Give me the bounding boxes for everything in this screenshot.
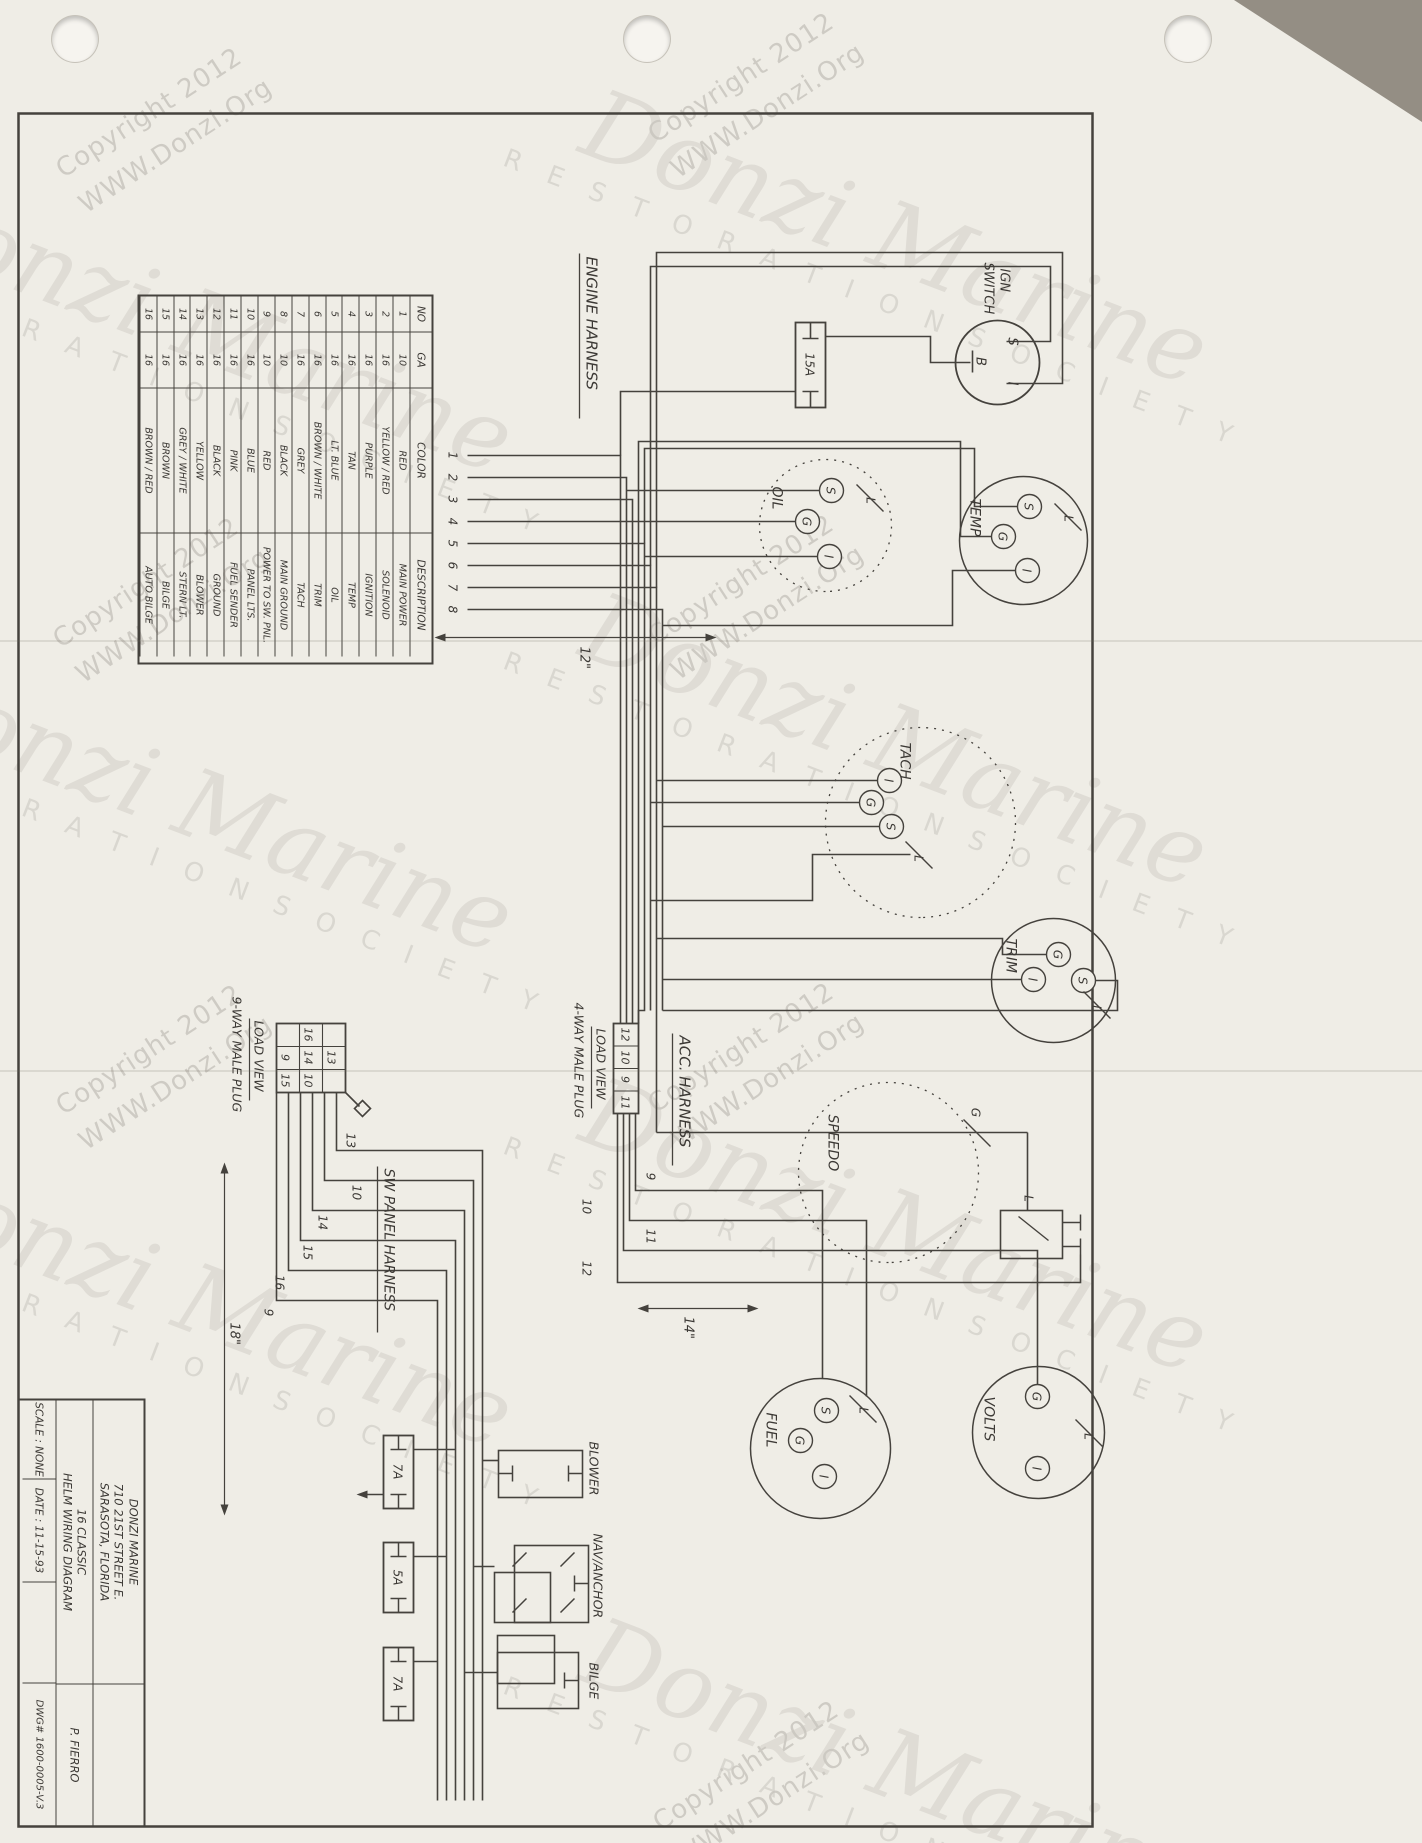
lamp-connector-box: L [1000,1195,1080,1258]
svg-text:15: 15 [300,1244,314,1259]
svg-text:10: 10 [579,1198,593,1214]
volts-terminal-i: I [1029,1466,1043,1470]
cell-no: 4 [341,296,358,332]
cell-ga: 16 [223,332,240,388]
ign-switch-label: SWITCH [980,262,995,314]
cell-color: LT. BLUE [325,388,342,533]
plug-pin: 15 [278,1073,291,1087]
cell-color: BROWN / WHITE [308,388,325,533]
cell-color: PURPLE [358,388,375,533]
lamp-box-label: L [1021,1195,1035,1202]
drawing-title: 16 CLASSIC HELM WIRING DIAGRAM [56,1400,92,1684]
cell-ga: 16 [173,332,190,388]
cell-ga: 16 [240,332,257,388]
cell-no: 8 [274,296,291,332]
punch-hole [52,16,98,62]
fuel-terminal-s: S [818,1406,832,1414]
trim-gauge-label: TRIM [1002,938,1018,973]
cell-desc: PANEL LTS. [240,533,257,656]
oil-terminal-s: S [823,486,837,494]
wire-color-table: NO GA COLOR DESCRIPTION 110REDMAIN POWER… [137,294,433,664]
nav-anchor-load: NAV/ANCHOR [494,1533,605,1622]
plug-pin: 13 [324,1050,337,1064]
svg-text:14: 14 [315,1214,329,1229]
trim-terminal-i: I [1025,977,1039,981]
fuel-gauge-label: FUEL [762,1412,778,1447]
cell-ga: 16 [206,332,223,388]
cell-ga: 16 [189,332,206,388]
table-header-ga: GA [409,332,431,388]
scanned-wiring-diagram-page: Donzi MarineR E S T O R A T I O N S O C … [0,0,1422,1843]
volts-terminal-g: G [1029,1391,1043,1400]
cell-no: 3 [358,296,375,332]
cell-color: YELLOW [189,388,206,533]
blower-load: BLOWER [498,1441,601,1497]
volts-gauge-label: VOLTS [980,1396,996,1441]
cell-ga: 10 [274,332,291,388]
svg-text:13: 13 [343,1132,357,1147]
svg-text:6: 6 [445,561,459,569]
cell-desc: MAIN GROUND [274,533,291,656]
cell-no: 12 [206,296,223,332]
cell-desc: GROUND [206,533,223,656]
acc-harness-wires [617,1113,1080,1396]
title-block-empty-cell [93,1684,143,1825]
breaker-5a-nav: 5A [383,1542,413,1612]
breaker-label: 5A [390,1569,404,1585]
paper-fold-crease [0,1070,1422,1072]
cell-color: BROWN / RED [139,388,156,533]
breaker-7a-bilge: 7A [383,1647,413,1720]
cell-color: RED [257,388,274,533]
nine-way-plug-label: LOAD VIEW [251,1020,266,1092]
bilge-load: BILGE [497,1635,601,1708]
dimension-label: 12" [576,646,591,669]
title-block-empty-cell [22,1582,55,1683]
temp-gauge: S G I L TEMP [959,476,1087,604]
tach-gauge: I G S L TACH [825,727,1015,917]
ign-terminal-s: S [1004,337,1019,345]
four-way-plug-label: 4-WAY MALE PLUG [571,1002,586,1118]
fuel-terminal-i: I [816,1474,830,1478]
nine-way-plug: 13 16 14 10 9 15 LOAD VIEW 9-WAY MALE PL… [229,996,370,1116]
breaker-label: 7A [390,1675,404,1691]
cell-desc: POWER TO SW. PNL. [257,533,274,656]
wire-direction-arrow [356,1490,367,1498]
cell-no: 5 [325,296,342,332]
cell-ga: 16 [291,332,308,388]
ign-terminal-i: I [1004,381,1019,385]
title-block: DONZI MARINE 710 21ST STREET E. SARASOTA… [17,1398,145,1827]
oil-gauge-label: OIL [768,486,784,509]
svg-text:7: 7 [445,583,459,591]
drawing-number-cell: DWG# 1600-0005-V.3 [22,1683,55,1825]
cell-color: BLACK [206,388,223,533]
dimension-14in: 14" [637,1304,758,1339]
svg-text:10: 10 [349,1184,363,1200]
blower-label: BLOWER [586,1441,601,1495]
tach-terminal-i: I [881,778,895,782]
paper-fold-crease [0,640,1422,642]
acc-harness-label: ACC. HARNESS [675,1034,693,1147]
company-address: DONZI MARINE 710 21ST STREET E. SARASOTA… [93,1400,143,1684]
temp-terminal-g: G [995,531,1009,540]
svg-text:16: 16 [272,1274,286,1290]
bilge-label: BILGE [586,1662,601,1699]
drawing-sheet-rotated: S I B IGN SWITCH 15A S G I L [0,0,1422,1843]
cell-color: YELLOW / RED [375,388,392,533]
date-cell: DATE : 11-15-93 [22,1479,55,1582]
cell-ga: 16 [156,332,173,388]
svg-text:12: 12 [579,1260,593,1275]
dimension-12in: 12" [434,633,716,669]
volts-gauge: G I L VOLTS [972,1366,1104,1498]
plug-pin: 14 [301,1050,314,1064]
drafter-name: P. FIERRO [56,1684,92,1825]
oil-terminal-g: G [799,516,813,525]
cell-desc: TACH [291,533,308,656]
cell-color: PINK [223,388,240,533]
oil-gauge: S G I L OIL [759,459,891,591]
table-header-description: DESCRIPTION [409,533,431,656]
speedo-gauge: G SPEEDO [798,1082,990,1262]
svg-text:2: 2 [445,473,459,481]
dimension-label: 14" [680,1316,695,1339]
svg-text:3: 3 [445,495,459,503]
plug-pin: 10 [618,1050,631,1064]
fuel-terminal-g: G [792,1435,806,1444]
tach-terminal-s: S [883,822,897,830]
cell-desc: BILGE [156,533,173,656]
four-way-plug: 12 10 9 11 LOAD VIEW 4-WAY MALE PLUG [571,1002,638,1118]
svg-text:4: 4 [445,517,459,525]
cell-no: 1 [392,296,409,332]
cell-ga: 16 [341,332,358,388]
cell-color: TAN [341,388,358,533]
cell-desc: MAIN POWER [392,533,409,656]
plug-pin: 11 [618,1095,631,1109]
svg-text:8: 8 [445,605,459,613]
ign-switch-label: IGN [996,268,1011,292]
svg-text:9: 9 [261,1308,275,1316]
trim-terminal-g: G [1050,949,1064,958]
cell-no: 2 [375,296,392,332]
scan-corner-shadow [1234,0,1422,122]
cell-ga: 10 [257,332,274,388]
svg-text:1: 1 [445,451,459,459]
temp-gauge-label: TEMP [966,498,982,536]
speedo-gauge-label: SPEEDO [824,1114,840,1171]
plug-pin: 16 [301,1027,314,1041]
scale-cell: SCALE : NONE [22,1400,55,1479]
svg-text:5: 5 [445,539,459,547]
fuel-gauge: S G I L FUEL [750,1378,890,1518]
breaker-7a-blower: 7A [383,1435,413,1508]
nine-way-plug-label: 9-WAY MALE PLUG [229,996,244,1112]
temp-terminal-i: I [1019,568,1033,572]
cell-desc: OIL [325,533,342,656]
cell-ga: 10 [392,332,409,388]
cell-color: RED [392,388,409,533]
cell-color: BROWN [156,388,173,533]
fuse-15a-label: 15A [802,352,816,375]
table-header-no: NO [409,296,431,332]
cell-ga: 16 [375,332,392,388]
cell-desc: STERN LT. [173,533,190,656]
dimension-label: 18" [226,1322,241,1345]
cell-desc: FUEL SENDER [223,533,240,656]
cell-color: BLUE [240,388,257,533]
trim-terminal-s: S [1075,976,1089,984]
cell-no: 9 [257,296,274,332]
cell-desc: IGNITION [358,533,375,656]
svg-text:11: 11 [643,1228,657,1243]
punch-hole [624,16,670,62]
cell-no: 16 [139,296,156,332]
cell-no: 14 [173,296,190,332]
engine-harness-label: ENGINE HARNESS [582,256,600,390]
ign-terminal-b: B [972,357,987,366]
cell-desc: AUTO BILGE [139,533,156,656]
cell-desc: TEMP [341,533,358,656]
cell-no: 11 [223,296,240,332]
cell-color: GREY [291,388,308,533]
cell-color: BLACK [274,388,291,533]
cell-desc: TRIM [308,533,325,656]
plug-pin: 12 [618,1027,631,1041]
tach-terminal-g: G [863,797,877,806]
temp-terminal-s: S [1021,502,1035,510]
cell-no: 13 [189,296,206,332]
svg-text:9: 9 [643,1172,657,1180]
cell-desc: BLOWER [189,533,206,656]
cell-color: GREY / WHITE [173,388,190,533]
speedo-lamp-terminal: G [968,1107,982,1116]
punch-hole [1165,16,1211,62]
nav-anchor-label: NAV/ANCHOR [590,1533,605,1618]
fuel-lamp-terminal: L [856,1407,870,1414]
temp-lamp-terminal: L [1061,515,1075,522]
oil-terminal-i: I [821,554,835,558]
schematic-svg: S I B IGN SWITCH 15A S G I L [0,0,1422,1843]
fuse-15a: 15A [795,322,825,407]
breaker-label: 7A [390,1463,404,1479]
cell-ga: 16 [325,332,342,388]
cell-ga: 16 [308,332,325,388]
plug-pin: 9 [618,1076,631,1083]
four-way-plug-label: LOAD VIEW [593,1028,608,1100]
plug-pin: 10 [301,1073,314,1087]
engine-harness-wires [467,252,1117,1210]
cell-ga: 16 [358,332,375,388]
cell-no: 15 [156,296,173,332]
tach-gauge-label: TACH [896,742,912,780]
cell-no: 7 [291,296,308,332]
engine-wire-numbers: 1 2 3 4 5 6 7 8 [445,451,459,613]
cell-no: 10 [240,296,257,332]
sw-panel-harness-label: SW PANEL HARNESS [380,1168,396,1311]
table-header-color: COLOR [409,388,431,533]
dimension-18in: 18" [220,1162,241,1515]
plug-pin: 9 [278,1054,291,1061]
cell-ga: 16 [139,332,156,388]
cell-no: 6 [308,296,325,332]
cell-desc: SOLENOID [375,533,392,656]
